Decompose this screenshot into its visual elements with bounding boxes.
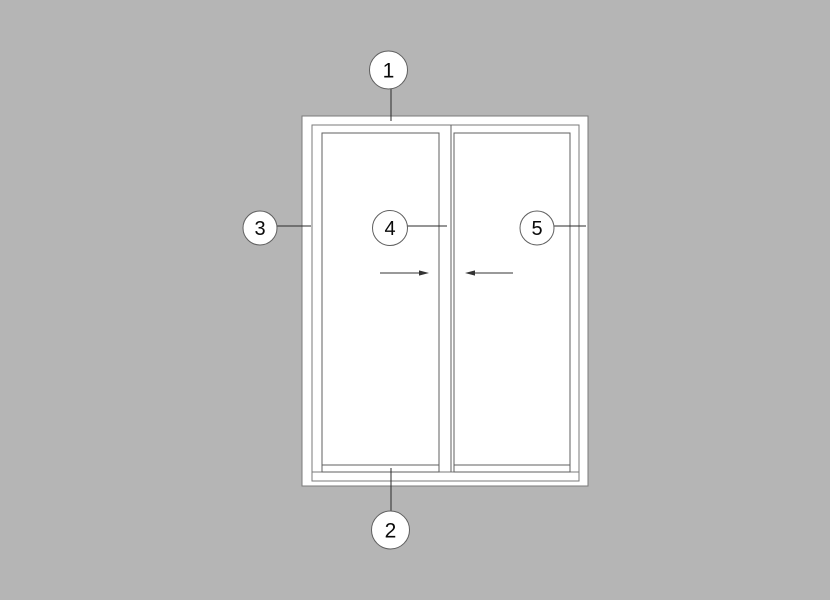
callout-5-label: 5 [531, 218, 542, 240]
right-sliding-panel [451, 125, 570, 472]
left-panel-sash [322, 133, 439, 472]
callout-2-label: 2 [385, 520, 397, 543]
left-sliding-panel [322, 133, 439, 472]
elevation-drawing: 1 2 3 4 5 [0, 0, 830, 600]
callout-4-label: 4 [384, 218, 395, 240]
callout-3-label: 3 [254, 218, 265, 240]
right-panel-sash [454, 133, 570, 472]
drawing-canvas: 1 2 3 4 5 [0, 0, 830, 600]
callout-1-label: 1 [383, 60, 395, 83]
